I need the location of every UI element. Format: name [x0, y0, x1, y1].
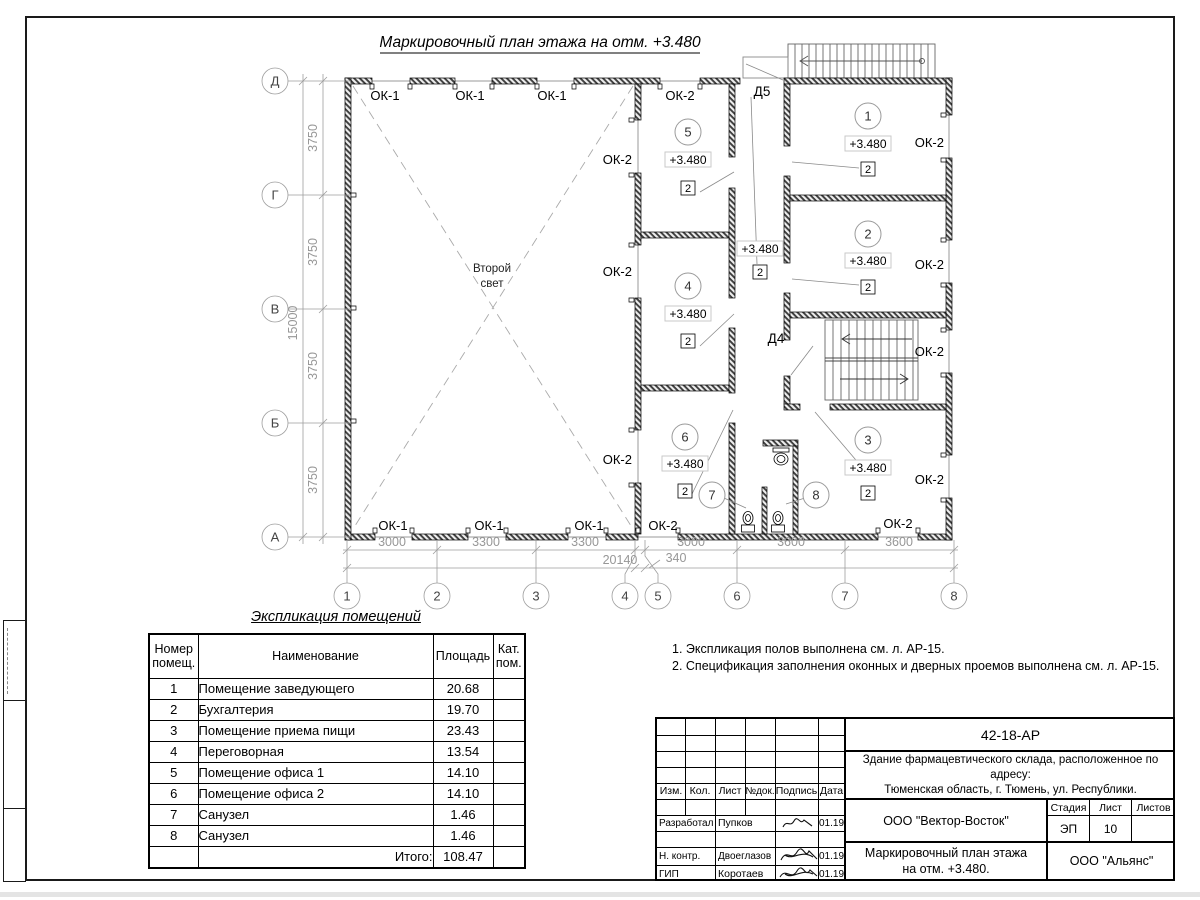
room-number: 1	[864, 109, 871, 124]
tb-date: 01.19	[818, 815, 845, 831]
axis-letter: В	[271, 302, 280, 317]
tb-name: Двоеглазов	[718, 847, 774, 865]
tb-role: Н. контр.	[659, 847, 715, 865]
tb-col-izm: Изм.	[657, 783, 685, 799]
tb-sheet-title-line1: Маркировочный план этажа	[865, 845, 1027, 861]
tb-col-ndok: №док.	[745, 783, 775, 799]
room-area: 20.68	[433, 678, 493, 699]
door-mark: 2	[865, 488, 871, 500]
second-light-label: свет	[480, 278, 504, 290]
elevation-value: +3.480	[669, 307, 706, 321]
room-cat	[493, 783, 525, 804]
tb-building: Здание фармацевтического склада, располо…	[846, 752, 1175, 798]
axis-number: 7	[841, 589, 848, 604]
axis-letter: Г	[271, 188, 278, 203]
col-header-name: Наименование	[198, 634, 433, 678]
tb-doc-code: 42-18-АР	[846, 719, 1175, 750]
dim-bottom: 3600	[777, 535, 805, 549]
window-label-ok2: ОК-2	[603, 152, 632, 167]
dim-bottom: 3300	[472, 535, 500, 549]
dim-bottom: 3300	[571, 535, 599, 549]
room-name: Бухгалтерия	[198, 699, 433, 720]
door-mark: 2	[865, 164, 871, 176]
elevation-value: +3.480	[849, 254, 886, 268]
axis-number: 2	[433, 589, 440, 604]
tb-line	[657, 799, 845, 800]
door-mark: 2	[682, 486, 688, 498]
dim-left-total: 15000	[286, 306, 300, 341]
table-row: 3 Помещение приема пищи 23.43	[149, 720, 525, 741]
window-label-ok1: ОК-1	[378, 518, 407, 533]
tb-col-data: Дата	[818, 783, 845, 799]
axis-number: 4	[621, 589, 628, 604]
room-cat	[493, 762, 525, 783]
atrium-dashed-cross	[353, 86, 633, 529]
elevation-value: +3.480	[849, 461, 886, 475]
tb-sheet-value: 10	[1090, 816, 1131, 841]
tb-building-line1: Здание фармацевтического склада, располо…	[846, 753, 1175, 783]
elevation-value: +3.480	[669, 153, 706, 167]
dim-left: 3750	[306, 124, 320, 152]
door-mark: 2	[685, 336, 691, 348]
tb-name: Пупков	[718, 815, 774, 831]
tb-sheets-label: Листов	[1132, 800, 1175, 815]
tb-line	[657, 831, 845, 832]
dim-left: 3750	[306, 352, 320, 380]
table-row: 7 Санузел 1.46	[149, 804, 525, 825]
plan-title: Маркировочный план этажа на отм. +3.480	[379, 34, 701, 51]
axis-number: 3	[532, 589, 539, 604]
tb-line	[657, 751, 845, 752]
window-label-ok2: ОК-2	[915, 344, 944, 359]
toilet-icon	[742, 512, 755, 533]
sink-icon	[773, 448, 789, 465]
room-area: 1.46	[433, 825, 493, 846]
notes: 1. Экспликация полов выполнена см. л. АР…	[672, 641, 1159, 675]
tb-col-kol: Кол.	[685, 783, 715, 799]
room-name: Помещение приема пищи	[198, 720, 433, 741]
room-num: 2	[149, 699, 198, 720]
tb-org: ООО "Вектор-Восток"	[846, 800, 1046, 841]
title-block: Изм. Кол. Лист №док. Подпись Дата Разраб…	[655, 717, 1175, 881]
dim-bottom-offset: 340	[666, 551, 687, 565]
col-header-num: Номер помещ.	[149, 634, 198, 678]
tb-building-line2: Тюменская область, г. Тюмень, ул. Респуб…	[884, 783, 1137, 798]
window-label-ok2: ОК-2	[915, 257, 944, 272]
dim-bottom: 3600	[885, 535, 913, 549]
room-number: 3	[864, 433, 871, 448]
tb-org2: ООО "Альянс"	[1048, 843, 1175, 879]
axis-letter: Б	[271, 416, 280, 431]
room-num: 8	[149, 825, 198, 846]
room-number: 7	[708, 488, 715, 503]
window-label-ok2: ОК-2	[648, 518, 677, 533]
note-line: 1. Экспликация полов выполнена см. л. АР…	[672, 641, 1159, 658]
note-line: 2. Спецификация заполнения оконных и две…	[672, 658, 1159, 675]
room-number: 4	[684, 279, 691, 294]
frame-side-box-3	[3, 808, 26, 882]
room-area: 19.70	[433, 699, 493, 720]
dim-bottom-total: 20140	[603, 553, 638, 567]
window-edge-strip	[0, 892, 1200, 897]
tb-col-podpis: Подпись	[775, 783, 818, 799]
bottom-axes	[334, 540, 967, 609]
empty-cell	[493, 846, 525, 868]
elevation-marks: +3.480 +3.480 +3.480 +3.480 +3.480 +3.48…	[662, 136, 891, 475]
room-number: 8	[812, 488, 819, 503]
window-label-ok2: ОК-2	[915, 472, 944, 487]
total-label: Итого:	[198, 846, 433, 868]
drawing-sheet: Маркировочный план этажа на отм. +3.480	[0, 0, 1200, 900]
tb-role: Разработал	[659, 815, 715, 831]
room-name: Помещение офиса 1	[198, 762, 433, 783]
room-num: 1	[149, 678, 198, 699]
elevation-value: +3.480	[741, 242, 778, 256]
empty-cell	[149, 846, 198, 868]
col-header-cat: Кат. пом.	[493, 634, 525, 678]
explication: Экспликация помещений Номер помещ. Наиме…	[148, 609, 524, 869]
room-cat	[493, 825, 525, 846]
axis-number: 1	[343, 589, 350, 604]
tb-stage-label: Стадия	[1048, 800, 1089, 815]
tb-sheet-label: Лист	[1090, 800, 1131, 815]
room-number: 5	[684, 125, 691, 140]
toilet-icon	[772, 512, 785, 533]
tb-sheet-title: Маркировочный план этажа на отм. +3.480.	[846, 843, 1046, 879]
door-mark: 2	[865, 282, 871, 294]
table-row: 5 Помещение офиса 1 14.10	[149, 762, 525, 783]
tb-col-list: Лист	[715, 783, 745, 799]
floor-plan: Маркировочный план этажа на отм. +3.480	[0, 0, 1200, 620]
axis-letter: А	[271, 530, 280, 545]
room-cat	[493, 804, 525, 825]
room-num: 3	[149, 720, 198, 741]
room-cat	[493, 699, 525, 720]
room-cat	[493, 678, 525, 699]
window-label-ok1: ОК-1	[370, 88, 399, 103]
axis-number: 6	[733, 589, 740, 604]
room-num: 4	[149, 741, 198, 762]
room-number: 6	[681, 430, 688, 445]
window-label-ok2: ОК-2	[665, 88, 694, 103]
door-mark: 2	[757, 267, 763, 279]
door-mark: 2	[685, 183, 691, 195]
tb-name: Коротаев	[718, 865, 774, 883]
frame-side-box-2	[3, 700, 26, 809]
col-header-area: Площадь	[433, 634, 493, 678]
tb-line	[657, 735, 845, 736]
second-light-label: Второй	[473, 263, 511, 275]
window-label-ok2: ОК-2	[603, 264, 632, 279]
table-row: 2 Бухгалтерия 19.70	[149, 699, 525, 720]
internal-stair	[825, 320, 918, 400]
window-label-ok1: ОК-1	[474, 518, 503, 533]
room-area: 13.54	[433, 741, 493, 762]
axis-number: 5	[654, 589, 661, 604]
room-name: Санузел	[198, 804, 433, 825]
room-name: Помещение офиса 2	[198, 783, 433, 804]
tb-sheet-title-line2: на отм. +3.480.	[902, 861, 989, 877]
tb-line	[657, 767, 845, 768]
room-num: 6	[149, 783, 198, 804]
tb-role: ГИП	[659, 865, 715, 883]
total-value: 108.47	[433, 846, 493, 868]
tb-date: 01.19	[818, 865, 845, 883]
tb-date: 01.19	[818, 847, 845, 865]
tb-stage-value: ЭП	[1048, 816, 1089, 841]
door-label-d5: Д5	[754, 84, 771, 99]
room-area: 14.10	[433, 762, 493, 783]
room-name: Санузел	[198, 825, 433, 846]
external-stair	[743, 44, 935, 78]
door-label-d4: Д4	[768, 331, 785, 346]
table-total-row: Итого: 108.47	[149, 846, 525, 868]
room-num: 7	[149, 804, 198, 825]
table-row: 8 Санузел 1.46	[149, 825, 525, 846]
room-cat	[493, 741, 525, 762]
dim-left: 3750	[306, 466, 320, 494]
window-label-ok2: ОК-2	[915, 135, 944, 150]
table-row: 1 Помещение заведующего 20.68	[149, 678, 525, 699]
dim-bottom: 3000	[677, 535, 705, 549]
dim-bottom: 3000	[378, 535, 406, 549]
room-number: 2	[864, 227, 871, 242]
table-row: 4 Переговорная 13.54	[149, 741, 525, 762]
window-label-ok1: ОК-1	[574, 518, 603, 533]
room-area: 14.10	[433, 783, 493, 804]
axis-letter: Д	[271, 74, 280, 89]
window-label-ok2: ОК-2	[603, 452, 632, 467]
dim-left: 3750	[306, 238, 320, 266]
axis-number: 8	[950, 589, 957, 604]
room-num: 5	[149, 762, 198, 783]
elevation-value: +3.480	[666, 457, 703, 471]
table-row: 6 Помещение офиса 2 14.10	[149, 783, 525, 804]
tb-sheets-value	[1132, 816, 1175, 841]
explication-table: Номер помещ. Наименование Площадь Кат. п…	[148, 633, 526, 869]
window-label-ok1: ОК-1	[455, 88, 484, 103]
window-label-ok2: ОК-2	[883, 516, 912, 531]
signature-icon	[779, 847, 819, 864]
window-label-ok1: ОК-1	[537, 88, 566, 103]
signature-icon	[781, 817, 815, 830]
room-name: Переговорная	[198, 741, 433, 762]
frame-side-text-hint	[7, 628, 9, 694]
signature-icon	[777, 865, 819, 882]
room-cat	[493, 720, 525, 741]
room-area: 1.46	[433, 804, 493, 825]
elevation-value: +3.480	[849, 137, 886, 151]
room-area: 23.43	[433, 720, 493, 741]
explication-title: Экспликация помещений	[148, 609, 524, 625]
room-name: Помещение заведующего	[198, 678, 433, 699]
